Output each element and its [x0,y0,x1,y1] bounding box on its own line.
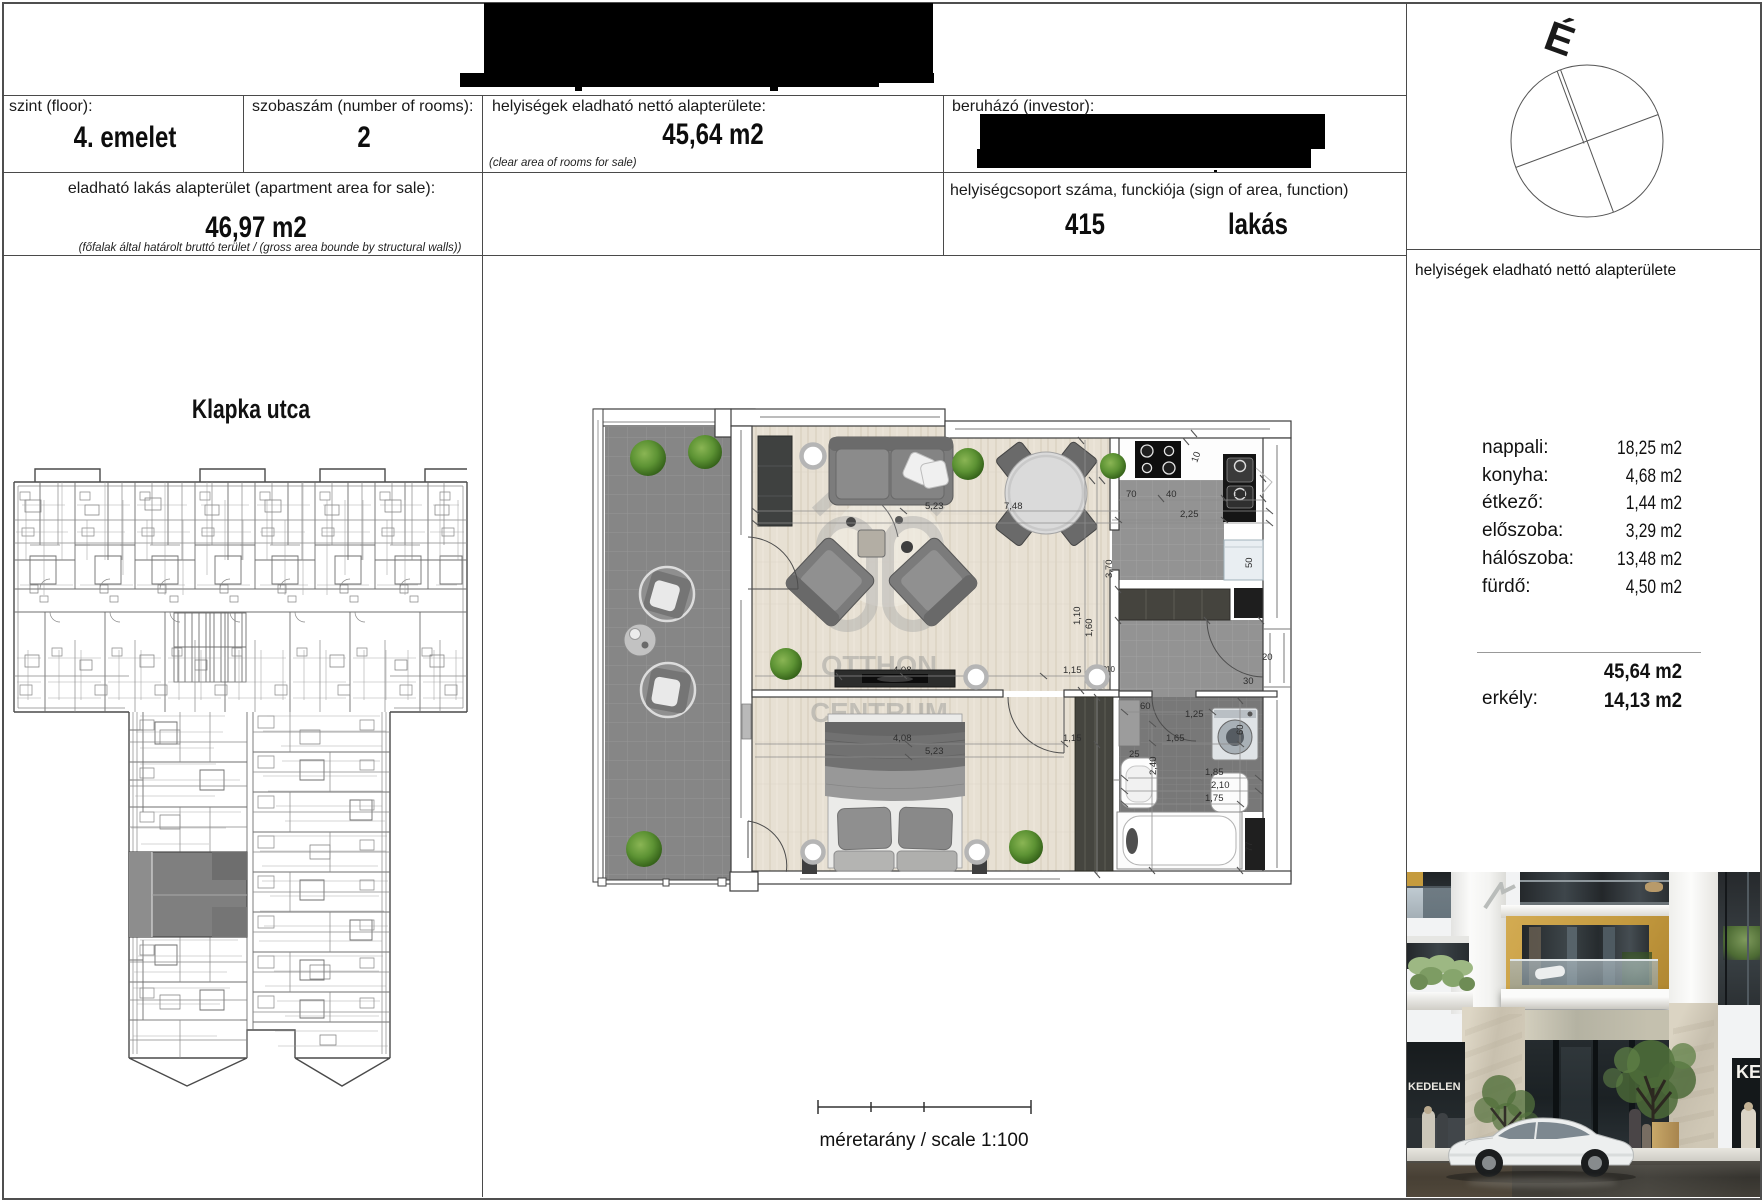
svg-text:méretarány / scale 1:100: méretarány / scale 1:100 [819,1130,1028,1151]
svg-text:2,10: 2,10 [1211,780,1230,791]
svg-text:3,70: 3,70 [1104,560,1115,579]
svg-text:25: 25 [1129,749,1140,760]
svg-text:1,15: 1,15 [1063,665,1082,676]
svg-text:60: 60 [1235,724,1246,735]
svg-text:2,25: 2,25 [1180,509,1199,520]
svg-text:1,65: 1,65 [1166,733,1185,744]
svg-text:2,40: 2,40 [1148,757,1159,776]
svg-text:50: 50 [1244,557,1255,568]
svg-text:1,25: 1,25 [1185,709,1204,720]
svg-text:70: 70 [1126,489,1137,500]
svg-text:1,60: 1,60 [1084,619,1095,638]
svg-text:20: 20 [1262,652,1273,663]
svg-text:30: 30 [1243,676,1254,687]
svg-text:1,10: 1,10 [1072,607,1083,626]
svg-text:1,15: 1,15 [1234,489,1253,500]
svg-text:77: 77 [1244,841,1255,852]
svg-text:5,23: 5,23 [925,501,944,512]
svg-text:4,08: 4,08 [893,665,912,676]
svg-text:60: 60 [1140,701,1151,712]
svg-text:4,08: 4,08 [893,733,912,744]
svg-text:7,48: 7,48 [1004,501,1023,512]
svg-text:1,15: 1,15 [1063,733,1082,744]
svg-text:40: 40 [1166,489,1177,500]
svg-text:5,23: 5,23 [925,746,944,757]
svg-text:É: É [1539,12,1581,66]
svg-text:1,75: 1,75 [1205,793,1224,804]
svg-text:1,85: 1,85 [1205,767,1224,778]
